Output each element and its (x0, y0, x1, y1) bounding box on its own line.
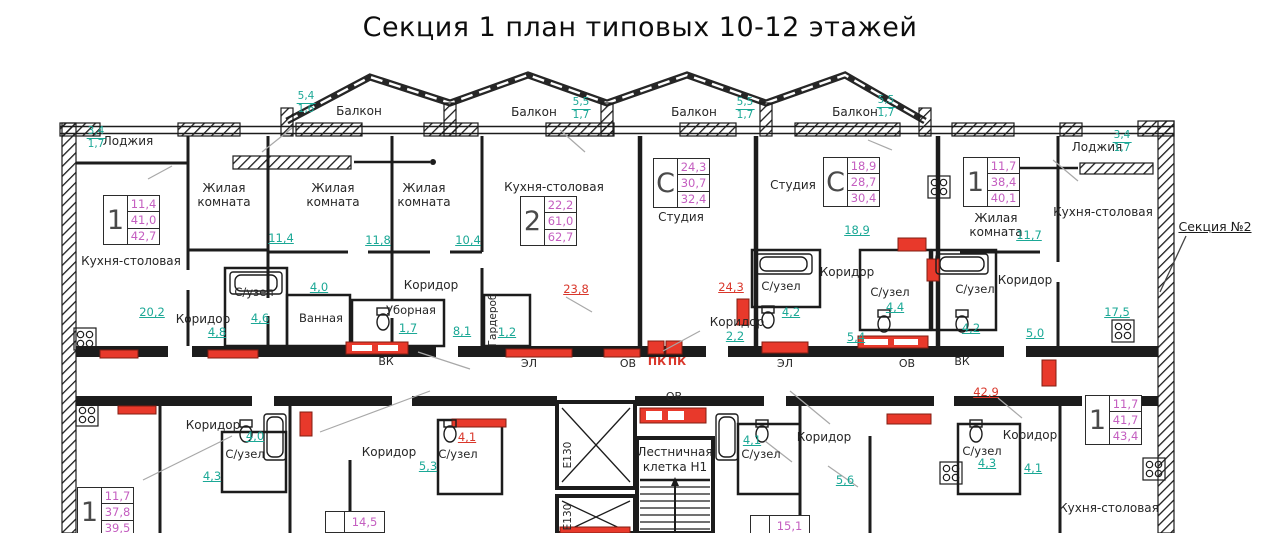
room-label: Коридор (797, 431, 852, 445)
room-label: Кухня-столовая (1059, 502, 1159, 516)
apartment-stamp: 2 22,261,062,7 (520, 196, 577, 246)
apartment-stamp-partial: 15,1 (750, 515, 810, 533)
room-label: Жилая комната (300, 182, 366, 210)
room-label: Коридор (186, 419, 241, 433)
area-dim: 17,5 (1104, 305, 1130, 319)
red-area-dim: 42,9 (973, 385, 999, 399)
room-label: С/узел (955, 283, 994, 296)
balcony-label: Балкон (511, 106, 557, 120)
balcony-dims: 5,41,6 (297, 91, 316, 115)
balcony-dims: 5,51,7 (877, 95, 896, 119)
area-dim: 4,2 (782, 305, 800, 319)
room-label: Жилая комната (391, 182, 457, 210)
area-dim: 5,6 (836, 473, 854, 487)
room-label: Коридор (362, 446, 417, 460)
room-label: Студия (658, 211, 704, 225)
area-dim: 18,9 (844, 223, 870, 237)
loggia-label: Лоджия (103, 135, 154, 149)
area-dim: 5,4 (847, 330, 865, 344)
room-label: Коридор (1003, 429, 1058, 443)
room-label: С/узел (761, 280, 800, 293)
shaft-label: ВК (954, 355, 969, 368)
area-dim: 20,2 (139, 305, 165, 319)
area-dim: 11,8 (365, 233, 391, 247)
area-dim: 4,0 (246, 429, 264, 443)
stove-vent-label: ПК (668, 355, 686, 368)
balcony-label: Балкон (336, 105, 382, 119)
apartment-stamp: 1 11,737,839,5 (77, 487, 134, 533)
stairwell-label: Лестничная клетка Н1 (637, 445, 712, 475)
room-label: Уборная (386, 304, 436, 317)
room-label: С/узел (741, 448, 780, 461)
page-title: Секция 1 план типовых 10-12 этажей (363, 12, 918, 43)
shaft-label: ОВ (666, 390, 682, 403)
room-label: Кухня-столовая (81, 255, 181, 269)
shaft-label: ОВ (620, 357, 636, 370)
area-dim: 10,4 (455, 233, 481, 247)
shaft-label: ЭЛ (521, 357, 537, 370)
shaft-label: ОВ (899, 357, 915, 370)
room-label: Коридор (998, 274, 1053, 288)
apartment-stamp: 1 11,441,042,7 (103, 195, 160, 245)
area-dim: 4,3 (978, 456, 996, 470)
stove-vent-label: ПК (648, 355, 666, 368)
room-label: С/узел (438, 448, 477, 461)
loggia-dims: 3,41,7 (87, 126, 106, 150)
room-label: С/узел (870, 286, 909, 299)
room-label: Кухня-столовая (1053, 206, 1153, 220)
apartment-stamp: С 24,330,732,4 (653, 158, 710, 208)
area-dim: 4,3 (203, 469, 221, 483)
room-label: Коридор (820, 266, 875, 280)
room-label: Студия (770, 179, 816, 193)
area-dim: 5,3 (419, 459, 437, 473)
floor-plan-canvas: Секция 1 план типовых 10-12 этажей Балко… (0, 0, 1280, 533)
room-label: Жилая комната (191, 182, 257, 210)
balcony-dims: 5,51,7 (572, 97, 591, 121)
shaft-label: ЭЛ (777, 357, 793, 370)
area-dim: 11,7 (1016, 228, 1042, 242)
apartment-stamp: 1 11,741,743,4 (1085, 395, 1142, 445)
area-dim: 4,0 (310, 280, 328, 294)
room-label: С/узел (234, 286, 273, 299)
section-ref-label: Секция №2 (1178, 219, 1251, 234)
balcony-label: Балкон (832, 106, 878, 120)
room-label: Ванная (299, 312, 343, 325)
apartment-stamp-partial: 14,5 (325, 511, 385, 533)
red-area-dim: 24,3 (718, 280, 744, 294)
apartment-stamp: С 18,928,730,4 (823, 157, 880, 207)
area-dim: 2,2 (726, 329, 744, 343)
area-dim: 4,1 (743, 433, 761, 447)
room-label: Коридор (404, 279, 459, 293)
apartment-stamp: 1 11,738,440,1 (963, 157, 1020, 207)
room-label: С/узел (225, 448, 264, 461)
area-dim: 8,1 (453, 324, 471, 338)
area-dim: 4,2 (962, 321, 980, 335)
room-label: Коридор (710, 316, 765, 330)
balcony-label: Балкон (671, 106, 717, 120)
elevator-label: Е130 (562, 504, 574, 531)
area-dim: 5,0 (1026, 326, 1044, 340)
shaft-label: ВК (378, 355, 393, 368)
balcony-dims: 5,51,7 (736, 97, 755, 121)
red-area-dim: 23,8 (563, 282, 589, 296)
area-dim: 4,1 (1024, 461, 1042, 475)
area-dim: 1,2 (498, 325, 516, 339)
area-dim: 4,6 (251, 311, 269, 325)
elevator-label: Е130 (562, 442, 574, 469)
room-label: Кухня-столовая (504, 181, 604, 195)
red-area-dim: 4,1 (458, 430, 476, 444)
area-dim: 1,7 (399, 321, 417, 335)
area-dim: 4,4 (886, 300, 904, 314)
loggia-dims: 3,41,7 (1113, 130, 1132, 154)
area-dim: 11,4 (268, 231, 294, 245)
area-dim: 4,8 (208, 325, 226, 339)
